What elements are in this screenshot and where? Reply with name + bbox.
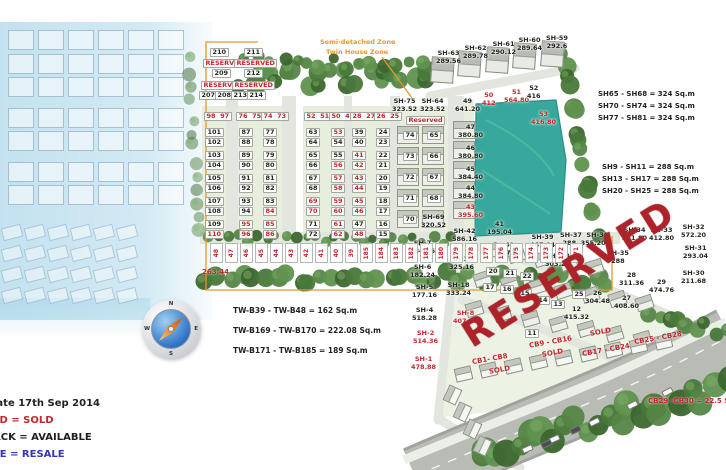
lot-chip: 89 (239, 151, 253, 160)
lot-chip: 95 (239, 220, 253, 229)
lot-chip: 69 (306, 197, 320, 206)
lot-chip: 110 (205, 230, 224, 239)
tree-highlight (186, 53, 191, 58)
lot-chip: 65 (306, 151, 320, 160)
strip-lot-cell: 176 (495, 243, 508, 263)
tree-highlight (574, 143, 581, 150)
tw-note: TW-B169 - TW-B170 = 222.08 Sq.m (233, 326, 381, 335)
strip-lot-cell: 180 (435, 243, 448, 263)
strip-lot-cell: 40 (330, 243, 343, 263)
tree-highlight (706, 375, 717, 386)
lot-chip: 53 (331, 128, 345, 137)
tree-highlight (679, 319, 687, 327)
lot-chip: 70 (403, 215, 417, 224)
strip-lot-cell: 46 (240, 243, 253, 263)
area-label: 26304.48 (585, 290, 610, 306)
boundary-measure: 263.44 (202, 268, 229, 276)
sh-note: SH9 - SH11 = 288 Sq.m (602, 163, 694, 171)
compass: N E S W (142, 300, 200, 358)
reserved-zone-chip: 214 (247, 91, 266, 100)
lot-chip: 21 (503, 269, 517, 278)
area-label: SH-42586.16 (452, 228, 477, 244)
lot-chip: 107 (205, 197, 224, 206)
tree-highlight (530, 420, 542, 432)
area-label: SH-2514.36 (413, 330, 438, 346)
lot-chip: 54 (331, 138, 345, 147)
lot-header: 76 75 (236, 112, 264, 121)
tree-highlight (187, 138, 193, 144)
area-label: SH-6182.24 (410, 264, 435, 280)
strip-lot-cell: 184 (375, 243, 388, 263)
lot-chip: 20 (376, 174, 390, 183)
reserved-zone-chip: 210 (210, 48, 229, 57)
lot-chip: 101 (205, 128, 224, 137)
tree-highlight (312, 62, 319, 69)
lot-header: 74 73 (261, 112, 289, 121)
tree-icon (583, 204, 600, 221)
tree-highlight (337, 272, 345, 280)
tree-icon (404, 57, 415, 68)
strip-lot-cell: 183 (390, 243, 403, 263)
legend-item: RED = SOLD (0, 415, 100, 432)
lot-chip: 57 (331, 174, 345, 183)
tree-highlight (364, 58, 370, 64)
compass-ring: N E S W (142, 300, 200, 358)
lot-chip: 71 (306, 220, 320, 229)
lot-chip: 24 (376, 128, 390, 137)
area-label: SH-69320.52 (421, 214, 446, 230)
compass-north-label: N (169, 301, 174, 307)
lot-chip: 93 (239, 197, 253, 206)
tree-icon (190, 157, 203, 170)
lot-chip: 23 (376, 138, 390, 147)
tree-icon (578, 180, 597, 199)
area-label: SH-63289.56 (436, 50, 461, 66)
reserved-chip: Reserved (406, 116, 445, 125)
reserved-zone-chip: 209 (212, 69, 231, 78)
tree-highlight (699, 318, 705, 324)
tw-note: TW-B171 - TW-B185 = 189 Sq.m (233, 346, 368, 355)
compass-south-label: S (169, 351, 173, 357)
area-label: SH-5177.16 (412, 284, 437, 300)
lot-chip: 87 (239, 128, 253, 137)
tree-highlight (193, 225, 199, 231)
sh-note: SH77 - SH81 = 324 Sq.m (598, 114, 695, 122)
lot-chip: 84 (263, 207, 277, 216)
lot-chip: 58 (331, 184, 345, 193)
lot-chip: 67 (427, 173, 441, 182)
lot-chip: 16 (376, 220, 390, 229)
lot-chip: 78 (263, 138, 277, 147)
strip-lot-cell: 41 (315, 243, 328, 263)
tw-note: TW-B39 - TW-B48 = 162 Sq.m (233, 306, 357, 315)
tree-icon (561, 76, 580, 95)
strip-lot-cell: 175 (510, 243, 523, 263)
tree-highlight (360, 273, 368, 281)
lot-chip: 64 (306, 138, 320, 147)
area-label: 49641.20 (455, 98, 480, 114)
lot-chip: 96 (239, 230, 253, 239)
lot-chip: 66 (306, 161, 320, 170)
area-label: 44384.80 (458, 185, 483, 201)
area-label: SH-31293.04 (683, 245, 708, 261)
lot-chip: 90 (239, 161, 253, 170)
lot-chip: 94 (239, 207, 253, 216)
site-plan-map: 210211RESERVEDRESERVED209212RESERVEDRESE… (0, 0, 726, 470)
tree-icon (346, 75, 363, 92)
area-label: SH-64323.52 (420, 98, 445, 114)
lot-chip: 43 (352, 174, 366, 183)
lot-chip: 92 (239, 184, 253, 193)
area-label: SH-32572.20 (681, 224, 706, 240)
lot-chip: 77 (263, 128, 277, 137)
tree-icon (276, 264, 294, 282)
area-label: 27408.60 (614, 295, 639, 311)
cb-note: CB29 -CB30 = 22.5 Sq.m (648, 398, 726, 406)
lot-chip: 72 (306, 230, 320, 239)
lot-chip: 82 (263, 184, 277, 193)
area-label: SH-59292.6 (546, 35, 568, 51)
lot-chip: 60 (331, 207, 345, 216)
tree-icon (391, 269, 407, 285)
lot-chip: 109 (205, 220, 224, 229)
zone-label-line1: Semi-detached Zone (320, 39, 395, 46)
strip-lot-cell: 47 (225, 243, 238, 263)
lot-chip: 55 (331, 151, 345, 160)
lot-chip: 108 (205, 207, 224, 216)
reserved-zone-chip: 211 (244, 48, 263, 57)
area-label: SH-4518.28 (412, 307, 437, 323)
lot-chip: 67 (306, 174, 320, 183)
strip-lot-cell: 39 (345, 243, 358, 263)
area-label: 29474.76 (649, 279, 674, 295)
lot-chip: 48 (352, 230, 366, 239)
area-label: SH-61290.12 (491, 41, 516, 57)
strip-lot-cell: 182 (405, 243, 418, 263)
lot-chip: 79 (263, 151, 277, 160)
lot-chip: 86 (263, 230, 277, 239)
lot-chip: 46 (352, 207, 366, 216)
tree-highlight (225, 232, 230, 237)
strip-lot-cell: 45 (255, 243, 268, 263)
lot-chip: 62 (331, 230, 345, 239)
tree-icon (291, 232, 303, 244)
lot-chip: 66 (427, 152, 441, 161)
area-label: SH-18333.24 (446, 282, 471, 298)
tree-highlight (603, 407, 613, 417)
area-label: SH-1478.88 (411, 356, 436, 372)
compass-face (151, 309, 191, 349)
lot-chip: 17 (376, 207, 390, 216)
lot-chip: 85 (263, 220, 277, 229)
area-label: 47380.80 (458, 124, 483, 140)
strip-lot-cell: 174 (525, 243, 538, 263)
tree-highlight (283, 232, 288, 237)
lot-chip: 88 (239, 138, 253, 147)
lot-header: 52 51 (304, 112, 332, 121)
lot-chip: 74 (403, 131, 417, 140)
lot-chip: 59 (331, 197, 345, 206)
tree-highlight (686, 382, 695, 391)
strip-lot-cell: 42 (300, 243, 313, 263)
tree-highlight (191, 117, 196, 122)
lot-chip: 15 (376, 230, 390, 239)
legend-item: BLACK = AVAILABLE (0, 432, 100, 449)
compass-center-dot (168, 326, 174, 332)
tree-icon (280, 52, 293, 65)
tree-highlight (418, 57, 424, 63)
tree-icon (366, 269, 385, 288)
area-label: SH-62289.78 (463, 45, 488, 61)
tree-highlight (198, 275, 206, 283)
area-label: 43395.60 (458, 204, 483, 220)
lot-chip: 44 (352, 184, 366, 193)
lot-chip: 103 (205, 151, 224, 160)
area-label: 12415.32 (564, 306, 589, 322)
reserved-zone-chip: RESERVED (234, 59, 277, 68)
lot-chip: 42 (352, 161, 366, 170)
tree-icon (182, 68, 196, 82)
zone-label-line2: Twin House Zone (326, 49, 388, 56)
sh-note: SH13 - SH17 = 288 Sq.m (602, 175, 699, 183)
tree-highlight (340, 63, 347, 70)
lot-chip: 47 (352, 220, 366, 229)
lot-chip: 72 (403, 173, 417, 182)
lot-chip: 41 (352, 151, 366, 160)
tree-icon (184, 94, 195, 105)
lot-chip: 63 (306, 128, 320, 137)
sh-note: SH65 - SH68 = 324 Sq.m (598, 90, 695, 98)
lot-chip: 104 (205, 161, 224, 170)
reserved-zone-chip: 212 (244, 69, 263, 78)
lot-chip: 20 (486, 267, 500, 276)
lot-chip: 17 (483, 283, 497, 292)
lot-chip: 73 (403, 152, 417, 161)
lot-chip: 102 (205, 138, 224, 147)
lot-chip: 70 (306, 207, 320, 216)
legend-update-line: Update 17th Sep 2014 (0, 398, 100, 415)
strip-lot-cell: 43 (285, 243, 298, 263)
area-label: 52416 (527, 85, 541, 101)
tree-highlight (294, 57, 299, 62)
area-label: SH-75323.52 (392, 98, 417, 114)
lot-chip: 18 (376, 197, 390, 206)
area-label: 51564.80 (504, 89, 529, 105)
tree-icon (562, 406, 585, 429)
tree-highlight (192, 199, 198, 205)
tree-highlight (389, 60, 396, 67)
compass-west-label: W (144, 326, 150, 332)
lot-chip: 91 (239, 174, 253, 183)
area-label: 41195.04 (487, 221, 512, 237)
lot-chip: 68 (427, 194, 441, 203)
strip-lot-cell: 177 (480, 243, 493, 263)
tree-icon (190, 184, 202, 196)
lot-chip: 40 (352, 138, 366, 147)
area-label: 45384.40 (458, 166, 483, 182)
lot-header: 98 97 (204, 112, 232, 121)
lot-chip: 11 (525, 329, 539, 338)
strip-lot-cell: 44 (270, 243, 283, 263)
area-label: 46380.80 (458, 145, 483, 161)
lot-chip: 80 (263, 161, 277, 170)
strip-lot-cell: 179 (450, 243, 463, 263)
reserved-zone-chip: RESERVED (232, 81, 275, 90)
strip-lot-cell: 48 (210, 243, 223, 263)
legend: Update 17th Sep 2014 RED = SOLDBLACK = A… (0, 398, 100, 466)
lot-chip: 68 (306, 184, 320, 193)
sh-note: SH20 - SH25 = 288 Sq.m (602, 187, 699, 195)
strip-lot-cell: 185 (360, 243, 373, 263)
compass-east-label: E (194, 326, 198, 332)
lot-chip: 83 (263, 197, 277, 206)
tree-highlight (243, 270, 252, 279)
lot-chip: 56 (331, 161, 345, 170)
tree-highlight (194, 173, 199, 178)
sh-note: SH70 - SH74 = 324 Sq.m (598, 102, 695, 110)
tree-icon (567, 101, 585, 119)
lot-chip: 65 (427, 131, 441, 140)
area-label: 53416.80 (531, 111, 556, 127)
area-label: 28311.36 (619, 272, 644, 288)
lot-chip: 81 (263, 174, 277, 183)
lot-chip: 61 (331, 220, 345, 229)
tree-highlight (399, 236, 404, 241)
lot-chip: 106 (205, 184, 224, 193)
legend-items: RED = SOLDBLACK = AVAILABLEBLUE = RESALE (0, 415, 100, 466)
legend-item: BLUE = RESALE (0, 449, 100, 466)
area-label: SH-30211.68 (681, 270, 706, 286)
tree-icon (194, 212, 205, 223)
strip-lot-cell: 178 (465, 243, 478, 263)
lot-chip: 22 (376, 151, 390, 160)
area-label: 50412 (482, 92, 496, 108)
lot-chip: 39 (352, 128, 366, 137)
tree-highlight (187, 83, 192, 88)
tree-highlight (314, 271, 320, 277)
area-label: SH-60289.64 (517, 37, 542, 53)
lot-chip: 105 (205, 174, 224, 183)
lot-chip: 21 (376, 161, 390, 170)
lot-chip: 71 (403, 194, 417, 203)
strip-lot-cell: 181 (420, 243, 433, 263)
tree-icon (574, 157, 589, 172)
lot-chip: 19 (376, 184, 390, 193)
lot-chip: 45 (352, 197, 366, 206)
